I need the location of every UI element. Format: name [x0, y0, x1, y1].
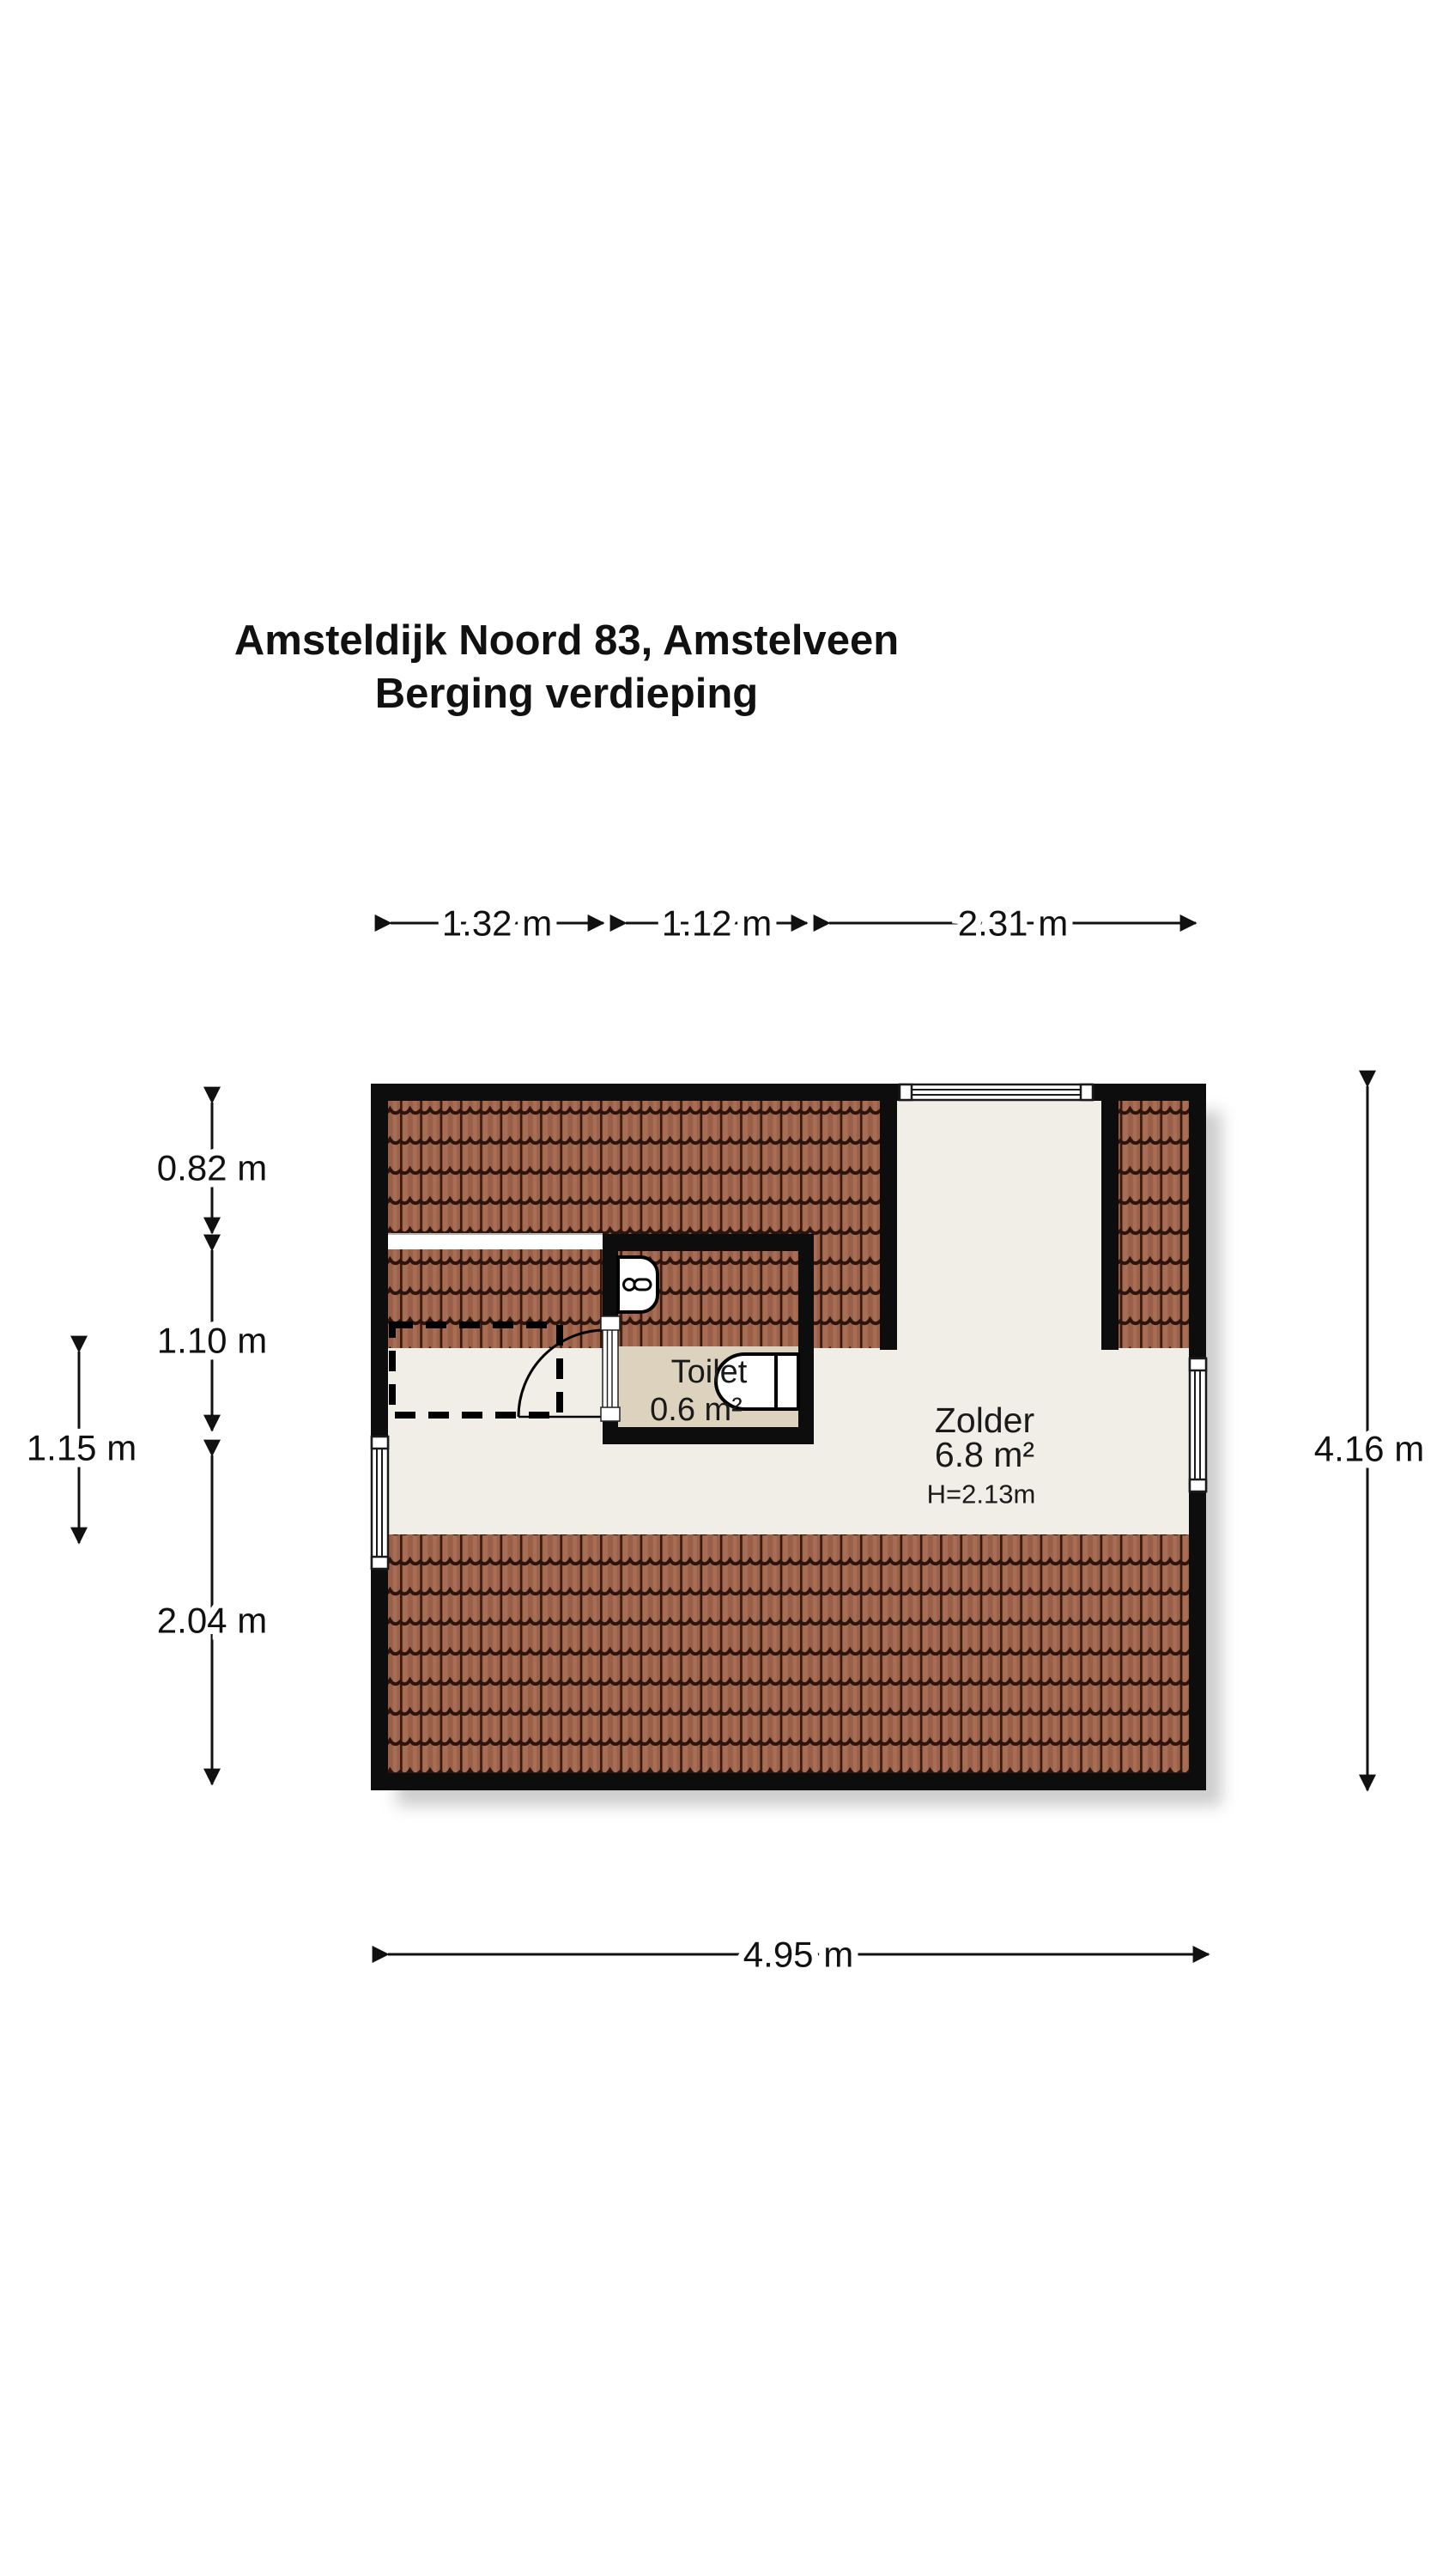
zolder-height-label: H=2.13m [927, 1479, 1036, 1510]
toilet-wall-bottom [603, 1427, 814, 1444]
roof-break-band [388, 1234, 603, 1249]
floorplan-page: Amsteldijk Noord 83, Amstelveen Berging … [0, 0, 1449, 2576]
sink-fixture [618, 1257, 658, 1312]
page-title: Amsteldijk Noord 83, Amstelveen Berging … [234, 617, 899, 717]
wall-bottom [371, 1773, 1206, 1790]
wall-top-left [371, 1084, 900, 1101]
dim-label-left-3: 2.04 m [157, 1601, 267, 1641]
wall-mid-right [1101, 1101, 1119, 1350]
zolder-area-label: 6.8 m² [935, 1435, 1034, 1474]
dim-label-right: 4.16 m [1314, 1429, 1424, 1469]
dim-label-bottom: 4.95 m [743, 1935, 853, 1975]
title-line-1: Amsteldijk Noord 83, Amstelveen [234, 617, 899, 664]
window-left [372, 1437, 388, 1569]
dim-label-left-1: 0.82 m [157, 1148, 267, 1188]
dim-label-top-1: 1.32 m [442, 903, 552, 944]
wall-mid-left [880, 1101, 897, 1350]
toilet-wall-right [798, 1234, 814, 1444]
dim-label-left-2: 1.10 m [157, 1321, 267, 1361]
door-jamb [603, 1316, 618, 1421]
dim-label-top-2: 1.12 m [662, 903, 772, 944]
window-right [1190, 1358, 1206, 1492]
window-top [900, 1084, 1093, 1100]
wall-right-upper [1189, 1084, 1206, 1358]
toilet-wall-top [603, 1234, 814, 1251]
toilet-wall-left-upper [603, 1234, 618, 1316]
wall-right-lower [1189, 1492, 1206, 1790]
toilet-name-label: Toilet [671, 1354, 748, 1390]
floor-plan: Toilet 0.6 m² Zolder 6.8 m² H=2.13m [371, 1084, 1222, 1806]
wall-left-upper [371, 1084, 388, 1437]
floorplan-drawing: Amsteldijk Noord 83, Amstelveen Berging … [0, 0, 1449, 2576]
title-line-2: Berging verdieping [375, 671, 759, 717]
toilet-area-label: 0.6 m² [650, 1392, 743, 1428]
wall-left-lower [371, 1569, 388, 1790]
dim-label-left-outer: 1.15 m [27, 1428, 136, 1468]
dim-label-top-3: 2.31 m [958, 903, 1068, 944]
zolder-floor-upper [895, 1101, 1101, 1350]
